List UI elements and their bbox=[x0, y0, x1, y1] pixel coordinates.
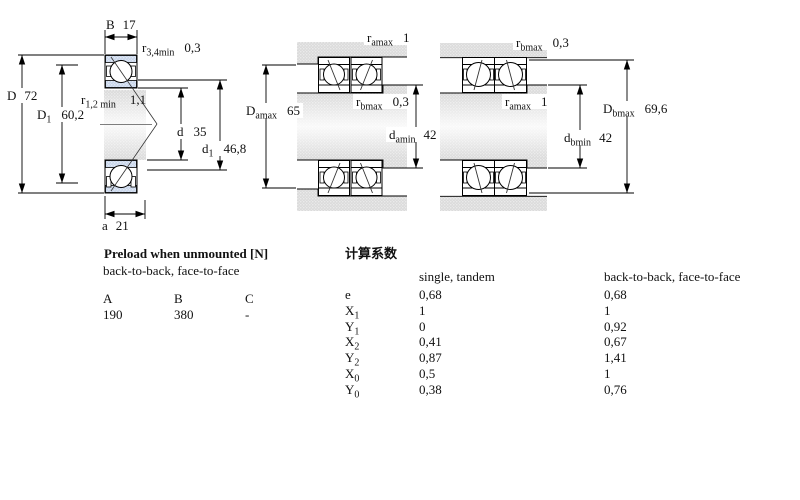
factor-row-Y1: Y100,92 bbox=[345, 319, 795, 335]
dim-label-d1: d146,8 bbox=[199, 141, 249, 156]
preload-value-B: 380 bbox=[174, 308, 194, 322]
preload-col-B: B bbox=[174, 292, 183, 306]
factor-row-e: e0,680,68 bbox=[345, 287, 795, 303]
dim-label-r34min: r3,4min0,3 bbox=[142, 41, 201, 54]
preload-value-C: - bbox=[245, 308, 249, 322]
dim-label-D: D72 bbox=[4, 88, 40, 103]
factors-title: 计算系数 bbox=[345, 247, 397, 261]
dim-label-dbmin: dbmin42 bbox=[561, 130, 615, 145]
bearing-datasheet: B17 r3,4min0,3 D72 D160,2 r1,2 min1,1 d3… bbox=[0, 0, 800, 500]
dim-label-r12min: r1,2 min1,1 bbox=[81, 93, 146, 106]
factors-col1-header: single, tandem bbox=[419, 270, 495, 284]
dim-label-Damax: Damax65 bbox=[243, 103, 303, 118]
factor-row-X2: X20,410,67 bbox=[345, 334, 795, 350]
face-to-face-diagram bbox=[440, 43, 634, 211]
factor-row-Y2: Y20,871,41 bbox=[345, 350, 795, 366]
preload-title: Preload when unmounted [N] bbox=[104, 247, 268, 261]
factors-rows: e0,680,68 X111 Y100,92 X20,410,67 Y20,87… bbox=[345, 287, 795, 398]
dim-label-ramax-right: ramax1 bbox=[502, 94, 551, 109]
dim-label-rbmax-mid: rbmax0,3 bbox=[353, 94, 412, 109]
preload-col-C: C bbox=[245, 292, 254, 306]
dim-label-rbmax-top: rbmax0,3 bbox=[513, 35, 572, 50]
preload-subtitle: back-to-back, face-to-face bbox=[103, 264, 239, 278]
dim-label-B: B17 bbox=[106, 18, 136, 31]
factors-col2-header: back-to-back, face-to-face bbox=[604, 270, 740, 284]
dim-label-Dbmax: Dbmax69,6 bbox=[600, 101, 670, 116]
preload-col-A: A bbox=[103, 292, 112, 306]
dim-label-damin: damin42 bbox=[386, 127, 440, 142]
preload-value-A: 190 bbox=[103, 308, 123, 322]
dim-label-D1: D160,2 bbox=[34, 107, 87, 122]
factor-row-X0: X00,51 bbox=[345, 366, 795, 382]
dim-label-a: a21 bbox=[102, 219, 129, 232]
factor-row-Y0: Y00,380,76 bbox=[345, 382, 795, 398]
dim-label-d: d35 bbox=[174, 124, 210, 139]
dim-label-ramax-top: ramax1 bbox=[364, 30, 413, 45]
factor-row-X1: X111 bbox=[345, 303, 795, 319]
